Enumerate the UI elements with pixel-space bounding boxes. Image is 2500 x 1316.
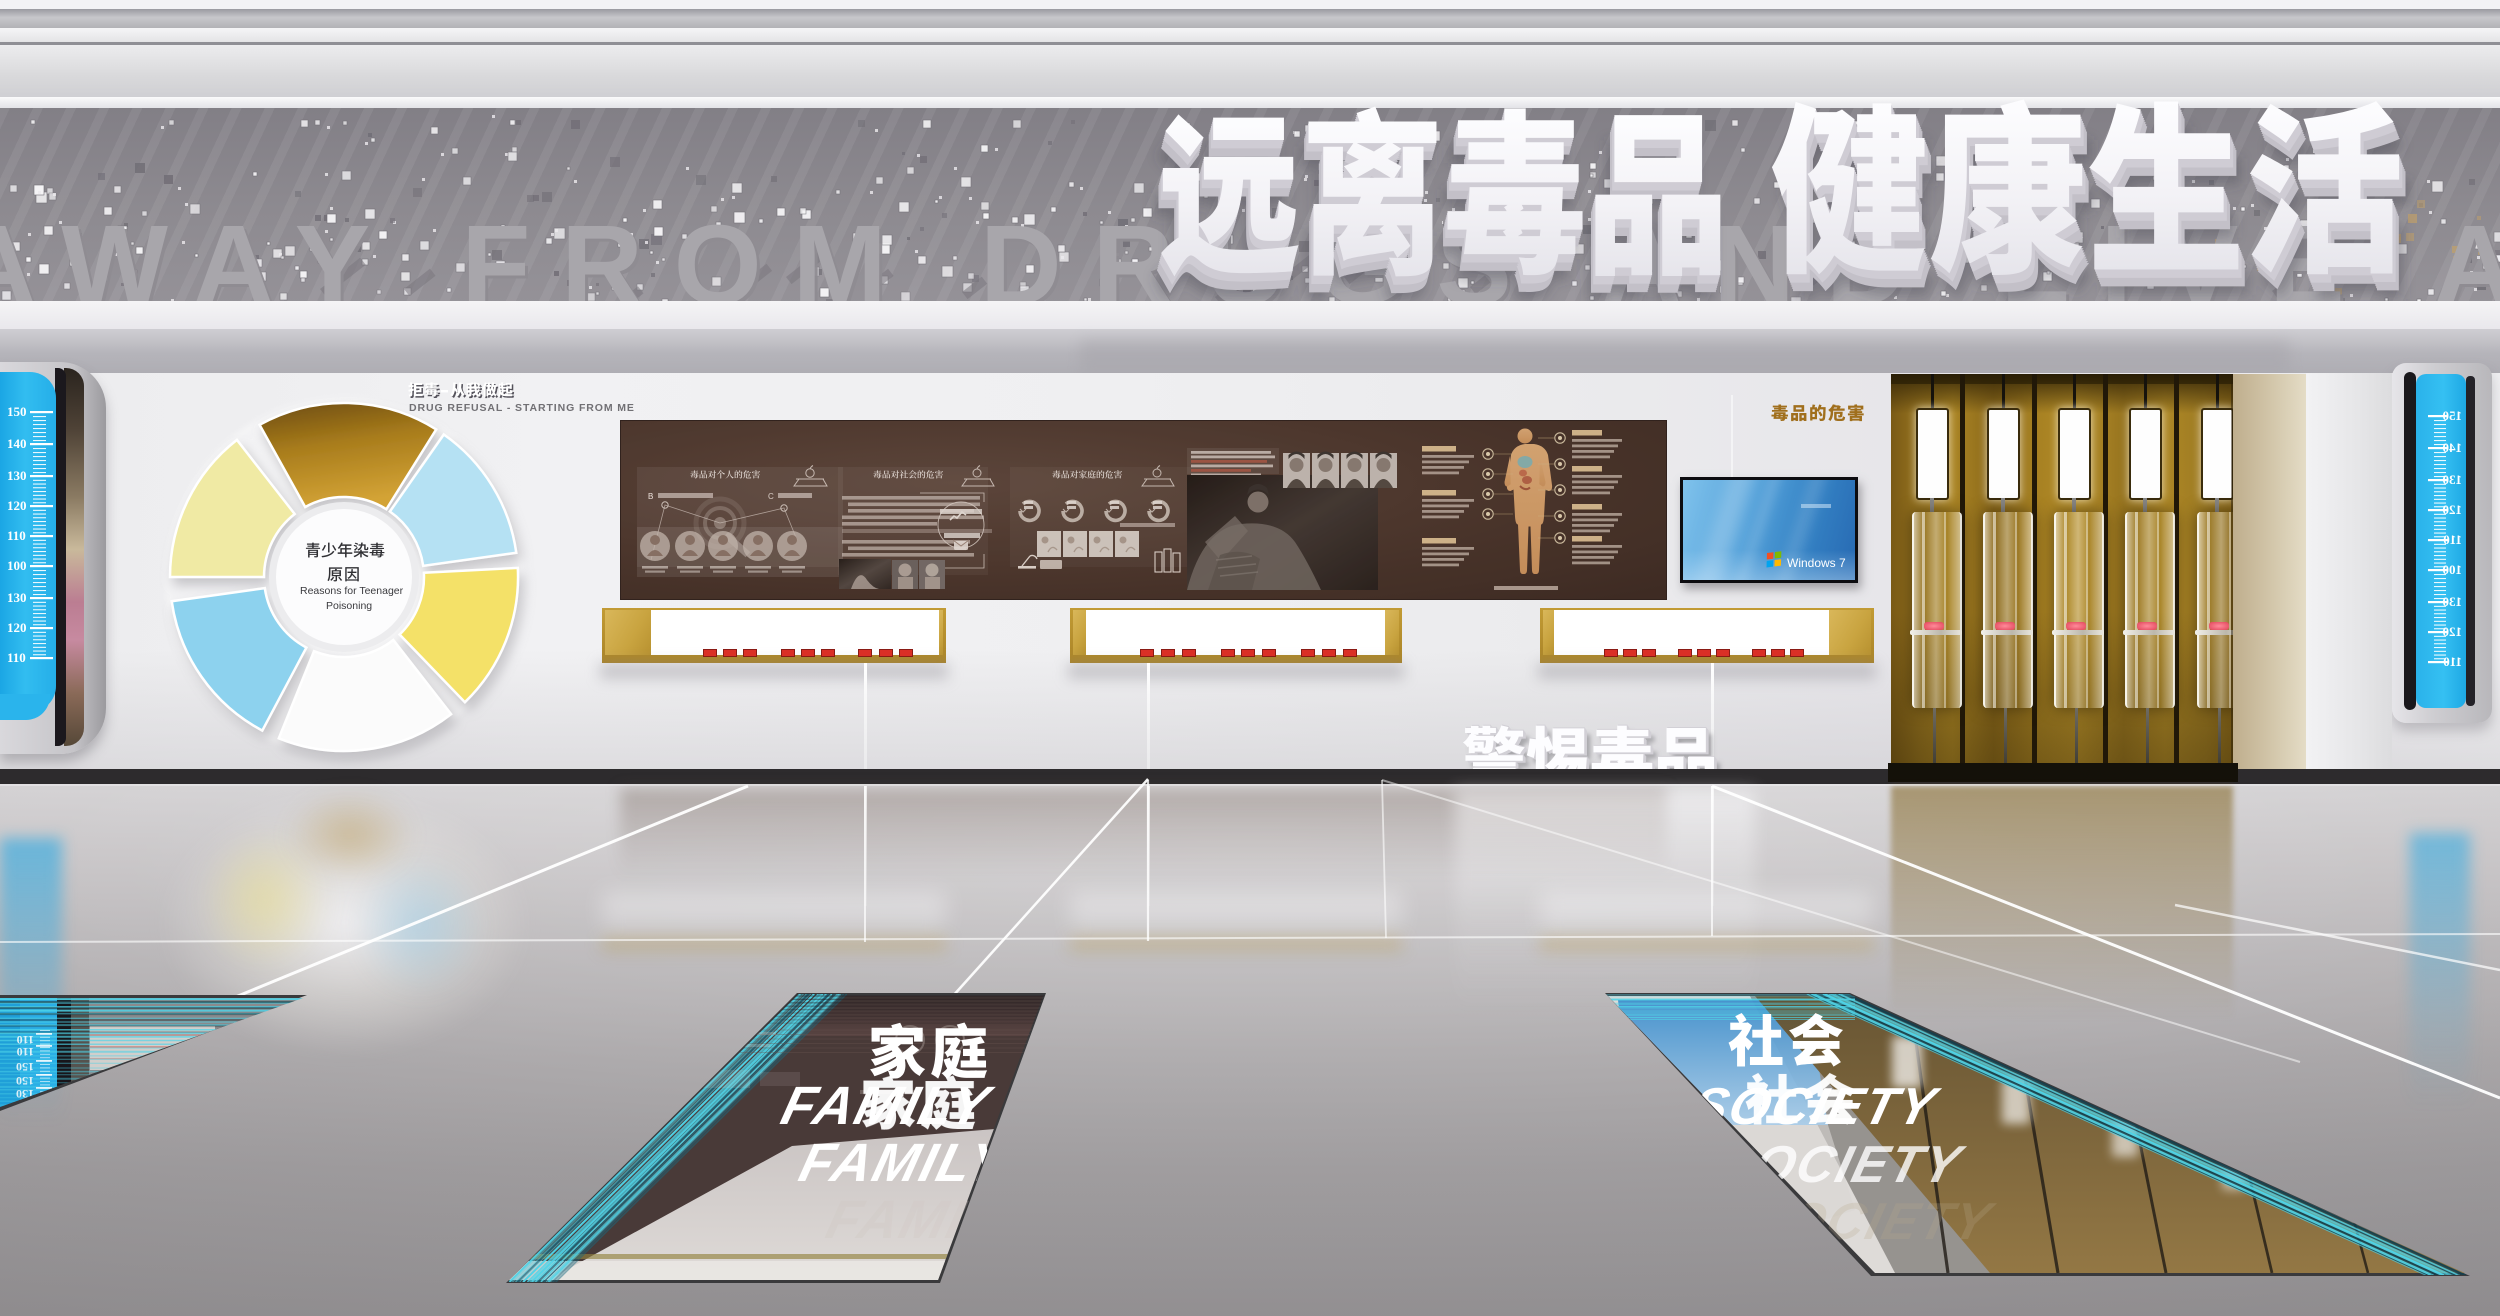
svg-text:110: 110 (7, 528, 26, 543)
svg-text:Reasons for Teenager: Reasons for Teenager (300, 585, 404, 597)
svg-text:130: 130 (7, 590, 27, 605)
svg-text:150: 150 (16, 1060, 34, 1074)
svg-text:FAMILY: FAMILY (794, 1132, 1018, 1193)
svg-text:130: 130 (16, 1087, 34, 1101)
svg-text:120: 120 (7, 620, 27, 635)
svg-text:Poisoning: Poisoning (326, 600, 372, 612)
svg-text:150: 150 (16, 1074, 34, 1088)
svg-text:110: 110 (7, 650, 26, 665)
svg-text:SOCIETY: SOCIETY (1741, 1193, 2000, 1251)
svg-text:110: 110 (17, 1033, 34, 1047)
svg-text:140: 140 (7, 436, 27, 451)
svg-text:100: 100 (7, 558, 27, 573)
svg-text:Windows 7: Windows 7 (1787, 556, 1846, 570)
svg-text:DRUG REFUSAL - STARTING FROM M: DRUG REFUSAL - STARTING FROM ME (409, 402, 635, 414)
svg-text:150: 150 (7, 404, 27, 419)
svg-text:SOCIETY: SOCIETY (1686, 1078, 1945, 1136)
svg-text:SOCIETY: SOCIETY (1711, 1136, 1970, 1194)
svg-text:120: 120 (7, 498, 27, 513)
svg-text:130: 130 (7, 468, 27, 483)
svg-text:110: 110 (17, 1045, 34, 1059)
svg-text:FAMILY: FAMILY (821, 1189, 1045, 1250)
